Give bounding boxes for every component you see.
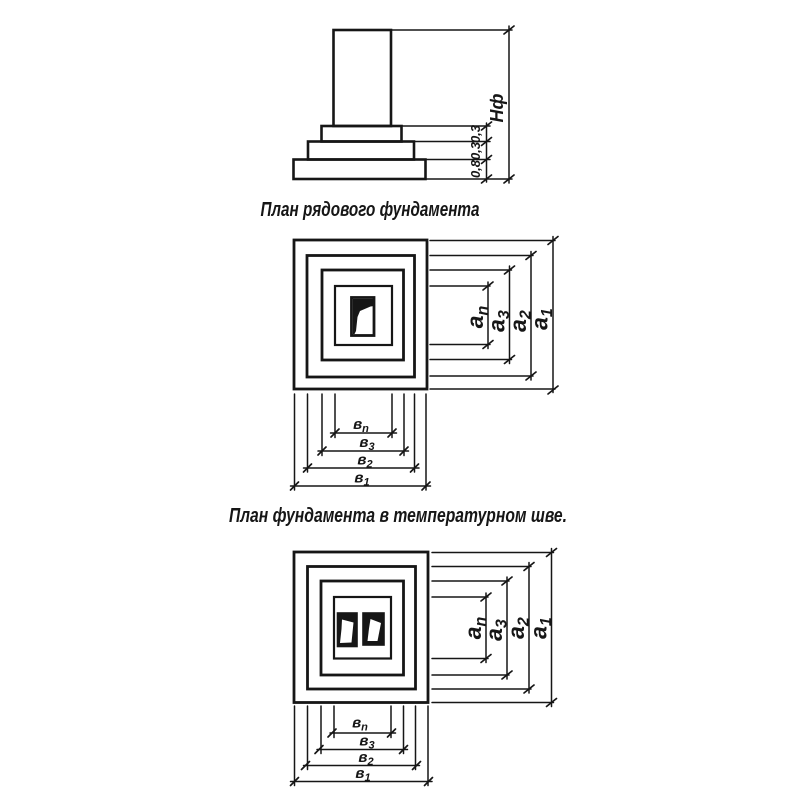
svg-text:0,3: 0,3 <box>468 124 483 143</box>
svg-text:в2: в2 <box>357 452 372 471</box>
svg-text:План рядового фундамента: План рядового фундамента <box>261 199 480 221</box>
svg-text:в1: в1 <box>354 470 369 489</box>
svg-text:вn: вn <box>353 416 369 435</box>
svg-text:в3: в3 <box>359 434 374 453</box>
svg-text:0,8: 0,8 <box>468 159 483 178</box>
svg-text:вn: вn <box>352 715 368 734</box>
svg-text:Нф: Нф <box>487 93 507 122</box>
svg-text:0,3: 0,3 <box>468 141 483 160</box>
svg-text:План фундамента в температурно: План фундамента в температурном шве. <box>229 505 567 527</box>
